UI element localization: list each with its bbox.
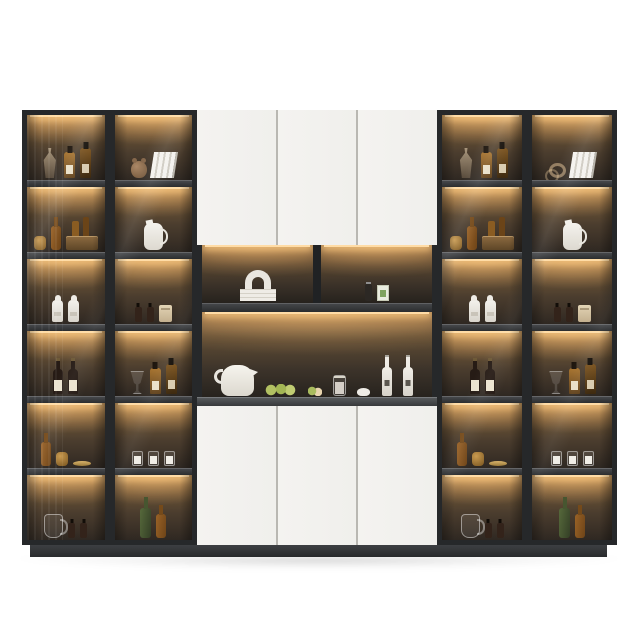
shelf <box>27 468 105 475</box>
shelf-items <box>449 121 515 178</box>
led-strip <box>535 331 609 333</box>
shelf-items <box>34 409 98 466</box>
shelf-items <box>209 318 425 396</box>
whisky-bottle <box>481 152 492 178</box>
whisky-bottle <box>569 368 580 394</box>
goblet <box>130 371 145 394</box>
leaning-books <box>150 152 178 178</box>
shelf <box>115 180 193 187</box>
upper-niche-row <box>202 245 432 303</box>
shelf-compartment-glass-decor-and-books <box>532 115 612 180</box>
upper-white-doors <box>197 110 437 245</box>
crate-of-bottles <box>482 236 514 250</box>
right-glass-columns <box>437 110 617 545</box>
candle-jar <box>132 451 143 466</box>
shelf-items <box>449 193 515 250</box>
cabinet-upper-door-2 <box>276 110 357 245</box>
led-strip <box>118 475 190 477</box>
amber-bottle <box>575 514 585 538</box>
leaning-books <box>569 152 597 178</box>
white-bottle <box>52 300 63 322</box>
amber-bottle <box>467 226 477 250</box>
lower-white-doors <box>197 406 437 545</box>
shelf-items <box>209 251 306 301</box>
shelf-items <box>539 193 605 250</box>
led-strip <box>535 259 609 261</box>
decanter <box>457 148 476 178</box>
white-bottle <box>469 300 480 322</box>
led-strip <box>445 115 519 117</box>
led-strip <box>30 259 102 261</box>
fruit-slice <box>308 386 322 396</box>
led-strip <box>30 115 102 117</box>
kettle-spout <box>250 369 258 377</box>
shelf-items <box>449 337 515 394</box>
paper-bag <box>159 305 172 322</box>
amber-bottle <box>156 514 166 538</box>
white-jug <box>144 223 163 250</box>
shelf-items <box>449 265 515 322</box>
shelf-items <box>122 121 186 178</box>
decanter <box>40 148 59 178</box>
shelf-compartment-pitcher-and-oil-bottles <box>442 475 522 540</box>
white-bottle <box>485 300 496 322</box>
glass-column-2 <box>110 110 198 545</box>
white-wine-bottle <box>382 367 392 396</box>
shelf-compartment-green-and-amber-bottle <box>532 475 612 540</box>
floor-shadow <box>18 557 620 570</box>
shelf-compartment-candle-jars <box>532 403 612 468</box>
led-strip <box>445 331 519 333</box>
shelf <box>442 468 522 475</box>
oil-bottle <box>68 523 75 538</box>
oil-bottle <box>497 523 504 538</box>
shelf-compartment-red-wine-bottles <box>442 331 522 396</box>
shelf-compartment-white-bottles <box>442 259 522 324</box>
candle-jar <box>164 451 175 466</box>
led-strip <box>30 187 102 189</box>
whisky-bottle <box>150 368 161 394</box>
shelf-compartment-green-and-amber-bottle <box>115 475 193 540</box>
led-strip <box>118 115 190 117</box>
led-strip <box>118 187 190 189</box>
amber-bottle <box>457 442 467 466</box>
shelf-items <box>122 265 186 322</box>
led-strip <box>535 187 609 189</box>
glass-pitcher <box>461 514 480 538</box>
display-cabinet-unit <box>22 110 617 545</box>
oil-bottle <box>485 523 492 538</box>
middle-shelf <box>202 303 432 312</box>
led-strip <box>535 115 609 117</box>
whisky-bottle <box>64 152 75 178</box>
shelf-items <box>34 337 98 394</box>
shelf <box>532 468 612 475</box>
red-wine-bottle <box>68 369 78 394</box>
shelf-items <box>328 251 425 301</box>
niche-top-right <box>321 245 432 303</box>
candle-jar <box>551 451 562 466</box>
shelf-compartment-decor-and-books <box>115 115 193 180</box>
shelf-compartment-decanter-and-whisky <box>442 115 522 180</box>
goblet <box>549 371 564 394</box>
candle-jar <box>567 451 578 466</box>
shelf-items <box>449 481 515 538</box>
shelf-compartment-white-jug <box>532 187 612 252</box>
white-wine-bottle <box>403 367 413 396</box>
shelf-compartment-amber-bottles-and-tray <box>442 403 522 468</box>
shelf-items <box>34 265 98 322</box>
amber-jar <box>472 452 484 466</box>
led-strip <box>445 187 519 189</box>
white-jug <box>563 223 582 250</box>
amber-jar <box>56 452 68 466</box>
shelf-items <box>122 337 186 394</box>
oil-bottle <box>135 307 142 322</box>
cabinet-upper-door-1 <box>197 110 276 245</box>
shelf-compartment-amber-bottles-and-tray <box>27 403 105 468</box>
arch-on-books <box>240 289 276 301</box>
shelf <box>115 468 193 475</box>
tea-box <box>377 285 389 301</box>
product-photo-stage <box>0 0 640 640</box>
shelf <box>532 324 612 331</box>
shelf <box>532 252 612 259</box>
fruit-group <box>265 384 296 396</box>
paper-bag <box>578 305 591 322</box>
red-wine-bottle <box>470 369 480 394</box>
shelf-items <box>449 409 515 466</box>
open-shelf-area <box>197 245 437 397</box>
led-strip <box>30 403 102 405</box>
shelf <box>442 324 522 331</box>
shelf <box>115 252 193 259</box>
glass-column-3 <box>437 110 527 545</box>
shelf-items <box>539 409 605 466</box>
shelf <box>532 180 612 187</box>
shelf-items <box>539 337 605 394</box>
shelf-compartment-candle-jars <box>115 403 193 468</box>
amber-bottle <box>41 442 51 466</box>
cabinet-upper-door-3 <box>356 110 437 245</box>
red-wine-bottle <box>53 369 63 394</box>
shelf-items <box>34 121 98 178</box>
shelf-items <box>34 481 98 538</box>
gold-tray <box>73 461 91 466</box>
gold-tray <box>489 461 507 466</box>
shelf <box>115 324 193 331</box>
shelf-compartment-condiments-and-paper-bag <box>532 259 612 324</box>
cabinet-lower-door-1 <box>197 406 276 545</box>
oil-bottle <box>566 307 573 322</box>
red-wine-bottle <box>485 369 495 394</box>
shelf-compartment-decanter-and-whisky <box>27 115 105 180</box>
whisky-bottle-tall <box>80 148 91 178</box>
candle-jar <box>148 451 159 466</box>
countertop <box>197 397 437 406</box>
led-strip <box>445 259 519 261</box>
shelf <box>27 324 105 331</box>
shelf-items <box>539 265 605 322</box>
led-strip <box>30 331 102 333</box>
led-strip <box>205 312 429 314</box>
shelf <box>27 252 105 259</box>
shelf-compartment-gold-basket-still-life <box>27 187 105 252</box>
led-strip <box>118 259 190 261</box>
garlic-bowl <box>357 388 370 396</box>
led-strip <box>118 331 190 333</box>
led-strip <box>118 403 190 405</box>
led-strip <box>445 403 519 405</box>
led-strip <box>535 475 609 477</box>
shelf-items <box>539 121 605 178</box>
cabinet-lower-door-3 <box>356 406 437 545</box>
led-strip <box>324 245 429 247</box>
whisky-bottle-tall <box>497 148 508 178</box>
whisky-bottle-tall <box>166 364 177 394</box>
candle-jar <box>583 451 594 466</box>
center-cabinet <box>197 110 437 545</box>
oil-bottle <box>80 523 87 538</box>
led-strip <box>30 475 102 477</box>
shelf-compartment-pitcher-and-oil-bottles <box>27 475 105 540</box>
shelf-compartment-white-bottles <box>27 259 105 324</box>
glass-rings <box>549 163 566 178</box>
shelf <box>442 396 522 403</box>
led-strip <box>205 245 310 247</box>
shelf <box>442 180 522 187</box>
shelf-items <box>122 409 186 466</box>
whisky-bottle-tall <box>585 364 596 394</box>
cabinet-lower-door-2 <box>276 406 357 545</box>
left-glass-columns <box>22 110 197 545</box>
shelf <box>532 396 612 403</box>
shelf <box>115 396 193 403</box>
bear-sculpture <box>131 161 147 178</box>
green-bottle <box>559 508 570 538</box>
glass-column-1 <box>22 110 110 545</box>
led-strip <box>535 403 609 405</box>
shelf-compartment-goblet-and-whisky <box>115 331 193 396</box>
shelf-compartment-goblet-and-whisky <box>532 331 612 396</box>
glass-column-4 <box>527 110 617 545</box>
shelf-items <box>34 193 98 250</box>
shelf-compartment-gold-basket-still-life <box>442 187 522 252</box>
plinth-base <box>30 545 607 557</box>
shelf <box>442 252 522 259</box>
shelf-items <box>539 481 605 538</box>
carafe <box>333 375 346 396</box>
shelf-compartment-white-jug <box>115 187 193 252</box>
glass-pitcher <box>44 514 63 538</box>
led-strip <box>445 475 519 477</box>
amber-jar <box>34 236 46 250</box>
niche-top-left <box>202 245 313 303</box>
shelf-compartment-red-wine-bottles <box>27 331 105 396</box>
shelf-items <box>122 193 186 250</box>
oil-bottle <box>147 307 154 322</box>
oil-bottle <box>554 307 561 322</box>
crate-of-bottles <box>66 236 98 250</box>
amber-jar <box>450 236 462 250</box>
white-bottle <box>68 300 79 322</box>
shelf-compartment-condiments-and-paper-bag <box>115 259 193 324</box>
green-bottle <box>140 508 151 538</box>
shelf <box>27 180 105 187</box>
shelf <box>27 396 105 403</box>
kettle <box>221 365 254 396</box>
amber-bottle <box>51 226 61 250</box>
counter-display-niche <box>202 312 432 397</box>
niche-divider <box>313 245 321 303</box>
shelf-items <box>122 481 186 538</box>
pepper-grinder <box>365 284 372 301</box>
